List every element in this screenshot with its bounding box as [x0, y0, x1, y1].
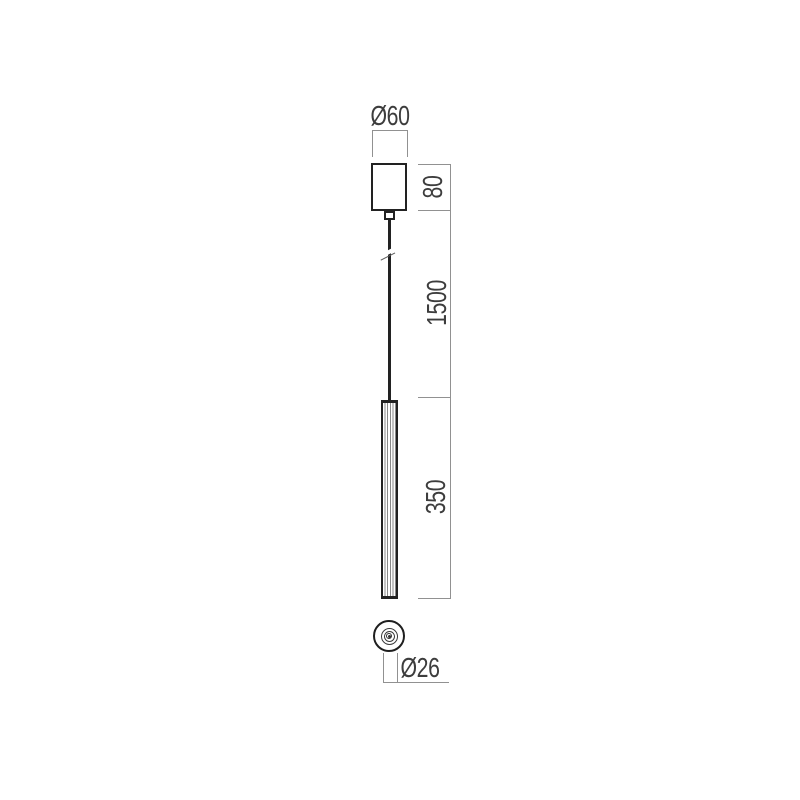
technical-drawing-canvas: Ø60 80 1500 350 Ø26	[0, 0, 800, 800]
dim-extension-tube-right	[397, 653, 398, 682]
dim-tick-tube-top	[418, 397, 451, 398]
dim-extension-canopy-left	[372, 130, 373, 157]
dim-chain-vertical-line	[450, 164, 451, 598]
dim-label-canopy-diameter: Ø60	[370, 102, 409, 130]
lamp-tube	[381, 400, 398, 599]
dim-label-canopy-height: 80	[419, 176, 447, 199]
bottom-view-center-dot	[388, 635, 391, 638]
dim-extension-canopy-right	[407, 130, 408, 157]
dim-tick-tube-bottom	[418, 598, 451, 599]
cable-gland	[384, 211, 395, 220]
dim-label-suspension-length: 1500	[423, 280, 451, 326]
dim-label-tube-length: 350	[422, 480, 450, 514]
dim-tick-canopy-bottom	[418, 210, 451, 211]
dim-tick-canopy-top	[418, 164, 451, 165]
suspension-cable	[388, 220, 392, 402]
dim-extension-tube-left	[383, 653, 384, 682]
dim-line-canopy-diameter	[372, 130, 408, 131]
canopy-front-view	[371, 163, 407, 211]
dim-label-tube-diameter: Ø26	[400, 654, 439, 682]
